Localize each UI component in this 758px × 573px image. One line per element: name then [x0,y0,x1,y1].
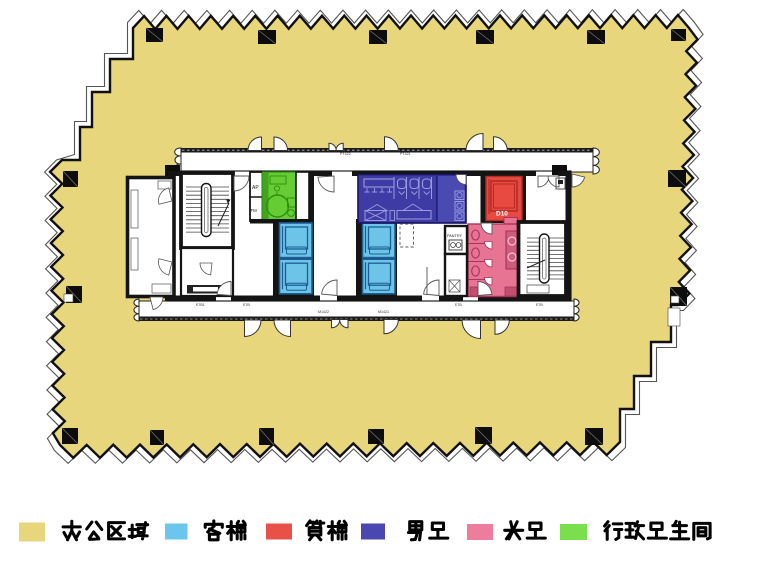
svg-text:E7B: E7B [455,303,462,307]
svg-text:E7B: E7B [536,303,543,307]
svg-text:FM: FM [251,208,258,213]
svg-text:E7B1: E7B1 [196,303,205,307]
svg-text:D10: D10 [496,211,508,218]
svg-text:PANTRY: PANTRY [447,234,463,238]
svg-text:AP: AP [252,185,259,191]
svg-text:E7B: E7B [243,303,250,307]
svg-text:M1422: M1422 [318,310,329,314]
svg-text:PT421: PT421 [400,152,411,156]
svg-text:PT422: PT422 [340,152,351,156]
svg-text:M1421: M1421 [378,310,389,314]
